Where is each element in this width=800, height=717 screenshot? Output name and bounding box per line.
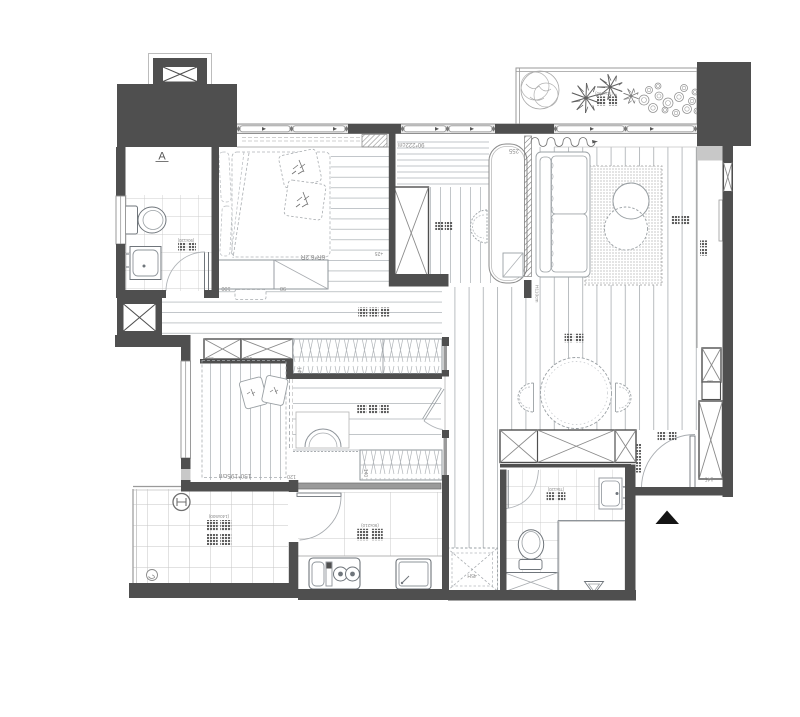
svg-text:(140x500): (140x500) [208, 514, 229, 519]
svg-text:(40x190): (40x190) [595, 91, 613, 96]
svg-text:140: 140 [362, 469, 368, 478]
svg-text:(75x120): (75x120) [547, 487, 564, 492]
svg-text:45H: 45H [467, 572, 477, 578]
svg-text:H110cm: H110cm [534, 285, 540, 303]
svg-text:90: 90 [280, 285, 286, 291]
svg-text:145: 145 [705, 476, 714, 482]
svg-text:100: 100 [221, 285, 230, 291]
svg-text:90*222cm: 90*222cm [397, 141, 424, 147]
svg-text:+25: +25 [375, 250, 384, 256]
svg-text:255: 255 [508, 147, 519, 153]
svg-text:(90x210): (90x210) [361, 523, 379, 528]
svg-text:6R*6.2R: 6R*6.2R [300, 253, 325, 260]
svg-text:(90x120): (90x120) [177, 238, 194, 243]
svg-text:150*195cm: 150*195cm [219, 472, 252, 479]
svg-text:A: A [158, 151, 166, 163]
svg-text:120: 120 [287, 473, 296, 479]
